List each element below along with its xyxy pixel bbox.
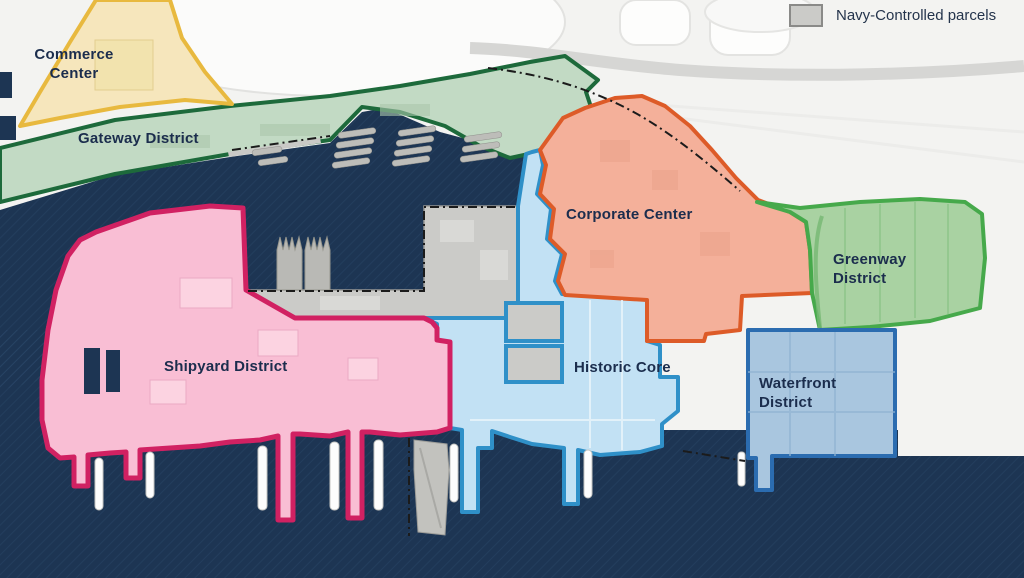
district-label-greenway: Greenway District: [833, 251, 928, 289]
aircraft-carrier: [414, 440, 449, 535]
navy-parcels-historic: [506, 303, 562, 382]
redevelopment-plan-map: Commerce Center Gateway District Corpora…: [0, 0, 1024, 578]
shore-structure: [0, 72, 12, 98]
district-label-gateway: Gateway District: [78, 130, 199, 149]
shore-structure: [0, 116, 16, 140]
district-label-historic: Historic Core: [574, 359, 671, 378]
map-svg: [0, 0, 1024, 578]
legend-label: Navy-Controlled parcels: [836, 7, 996, 24]
district-label-waterfront: Waterfront District: [759, 375, 863, 413]
navy-parcel-swatch-icon: [789, 4, 823, 27]
district-label-shipyard: Shipyard District: [164, 358, 287, 377]
district-label-corporate: Corporate Center: [566, 206, 693, 225]
map-legend: Navy-Controlled parcels: [789, 4, 996, 27]
district-label-commerce: Commerce Center: [16, 46, 132, 84]
